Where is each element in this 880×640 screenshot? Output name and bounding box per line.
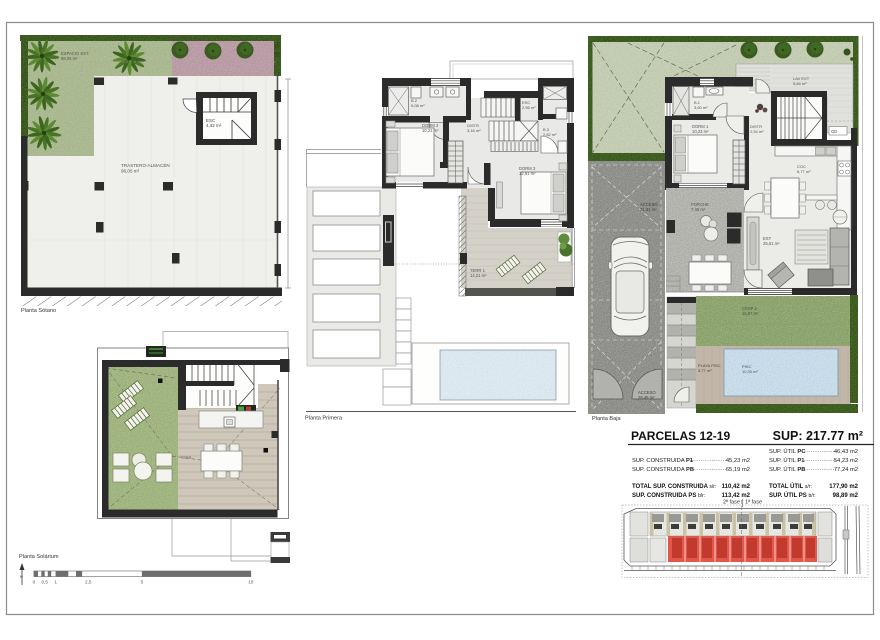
svg-text:TRASTERO-ALMACÉN: TRASTERO-ALMACÉN (121, 162, 170, 168)
svg-text:65,19 m2: 65,19 m2 (726, 467, 750, 473)
svg-text:1ª fase: 1ª fase (745, 499, 762, 506)
svg-text:110,42 m2: 110,42 m2 (722, 484, 751, 490)
svg-text:Planta Solárium: Planta Solárium (19, 554, 59, 560)
svg-text:10: 10 (248, 580, 254, 585)
svg-text:98,89 m2: 98,89 m2 (833, 493, 859, 499)
svg-text:Planta Sótano: Planta Sótano (21, 308, 56, 314)
svg-text:SUP. ÚTIL PS b/r:: SUP. ÚTIL PS b/r: (769, 492, 816, 499)
svg-text:SUP. ÚTIL PB: SUP. ÚTIL PB (769, 466, 805, 473)
svg-text:2ª fase: 2ª fase (723, 499, 740, 506)
svg-text:45,23 m2: 45,23 m2 (726, 458, 750, 464)
svg-text:0,5: 0,5 (42, 580, 49, 585)
svg-text:GD: GD (831, 129, 837, 134)
svg-text:3,60 m²: 3,60 m² (694, 105, 708, 110)
svg-text:TERR: TERR (181, 456, 192, 460)
svg-text:46,43 m2: 46,43 m2 (834, 449, 858, 455)
svg-text:25,61 m²: 25,61 m² (763, 241, 780, 246)
svg-text:N: N (20, 574, 23, 579)
svg-text:SUP. CONSTRUIDA P1: SUP. CONSTRUIDA P1 (632, 458, 694, 464)
svg-text:98,05 m²: 98,05 m² (121, 169, 140, 174)
svg-text:0: 0 (33, 580, 36, 585)
svg-text:SUP. CONSTRUIDA PB: SUP. CONSTRUIDA PB (632, 467, 694, 473)
svg-text:SUP. ÚTIL P1: SUP. ÚTIL P1 (769, 457, 805, 464)
svg-text:2,82 m²: 2,82 m² (543, 132, 557, 137)
svg-text:6,77 m²: 6,77 m² (797, 169, 811, 174)
svg-text:2,54 m²: 2,54 m² (750, 129, 764, 134)
svg-text:10,21 m²: 10,21 m² (422, 128, 439, 133)
svg-text:98,05 m²: 98,05 m² (61, 56, 78, 61)
svg-text:Planta Baja: Planta Baja (592, 416, 621, 422)
svg-text:4,42 m²: 4,42 m² (206, 123, 222, 128)
svg-text:54,23 m2: 54,23 m2 (834, 458, 858, 464)
svg-text:9,84 m²: 9,84 m² (793, 81, 807, 86)
svg-text:12,91 m²: 12,91 m² (519, 171, 536, 176)
svg-text:SUP. CONSTRUIDA PS b/r:: SUP. CONSTRUIDA PS b/r: (632, 493, 705, 499)
svg-text:SUP: 217.77 m²: SUP: 217.77 m² (773, 429, 863, 443)
svg-text:TOTAL ÚTIL s/r:: TOTAL ÚTIL s/r: (769, 483, 812, 490)
svg-text:28,45 m²: 28,45 m² (638, 395, 655, 400)
svg-text:177,90 m2: 177,90 m2 (829, 484, 858, 490)
svg-text:5,77 m²: 5,77 m² (698, 368, 712, 373)
svg-text:77,24 m2: 77,24 m2 (834, 467, 858, 473)
svg-text:10,30 m²: 10,30 m² (742, 369, 758, 374)
svg-text:TOTAL SUP. CONSTRUIDA s/r:: TOTAL SUP. CONSTRUIDA s/r: (632, 484, 716, 490)
svg-text:2,56 m²: 2,56 m² (522, 105, 536, 110)
svg-text:2,5: 2,5 (85, 580, 92, 585)
svg-text:10,23 m²: 10,23 m² (692, 129, 709, 134)
svg-text:Planta Primera: Planta Primera (305, 416, 343, 422)
svg-text:16,97 m²: 16,97 m² (742, 311, 759, 316)
svg-text:113,42 m2: 113,42 m2 (722, 493, 751, 499)
svg-text:21,31 m²: 21,31 m² (640, 207, 657, 212)
svg-text:PARCELAS 12-19: PARCELAS 12-19 (631, 429, 730, 443)
svg-text:3,16 m²: 3,16 m² (467, 128, 481, 133)
svg-text:7,46 m²: 7,46 m² (691, 207, 706, 212)
svg-text:5,08 m²: 5,08 m² (411, 103, 425, 108)
svg-text:5: 5 (141, 580, 144, 585)
svg-text:1: 1 (54, 580, 57, 585)
svg-text:14,21 m²: 14,21 m² (470, 273, 487, 278)
